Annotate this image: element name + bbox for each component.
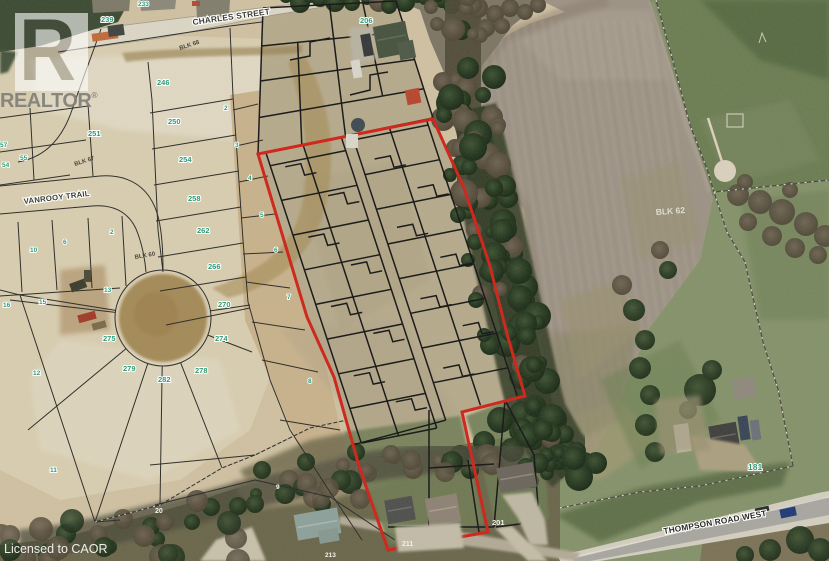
svg-text:266: 266 (208, 262, 221, 271)
svg-text:10: 10 (30, 247, 38, 254)
svg-text:2: 2 (110, 229, 114, 236)
svg-text:15: 15 (39, 299, 47, 306)
svg-text:13: 13 (104, 287, 112, 294)
svg-text:262: 262 (197, 226, 210, 235)
svg-text:2: 2 (224, 105, 228, 112)
svg-text:3: 3 (235, 142, 239, 149)
svg-text:REALTOR®: REALTOR® (0, 90, 98, 112)
svg-text:BLK 62: BLK 62 (655, 205, 685, 217)
svg-text:16: 16 (3, 302, 11, 309)
svg-text:8: 8 (308, 378, 312, 385)
svg-text:270: 270 (218, 300, 231, 309)
svg-text:7: 7 (287, 294, 291, 301)
svg-text:251: 251 (88, 129, 101, 138)
svg-text:250: 250 (168, 117, 181, 126)
svg-text:239: 239 (101, 15, 114, 24)
svg-text:274: 274 (215, 334, 228, 343)
svg-text:57: 57 (0, 142, 8, 149)
svg-text:275: 275 (103, 334, 116, 343)
svg-text:258: 258 (188, 194, 201, 203)
svg-text:5: 5 (260, 212, 264, 219)
svg-text:282: 282 (158, 375, 171, 384)
svg-text:254: 254 (179, 155, 192, 164)
svg-text:278: 278 (195, 366, 208, 375)
svg-text:246: 246 (157, 78, 170, 87)
svg-text:9: 9 (276, 484, 280, 491)
svg-text:4: 4 (248, 175, 252, 182)
svg-text:6: 6 (274, 247, 278, 254)
svg-text:181: 181 (748, 462, 762, 472)
svg-text:206: 206 (360, 16, 373, 25)
svg-text:11: 11 (50, 467, 57, 474)
svg-text:201: 201 (492, 518, 505, 527)
svg-text:12: 12 (33, 370, 41, 377)
svg-text:Licensed to CAOR: Licensed to CAOR (4, 542, 108, 556)
svg-text:6: 6 (63, 239, 67, 246)
svg-text:20: 20 (155, 508, 163, 515)
svg-text:279: 279 (123, 364, 136, 373)
svg-text:211: 211 (402, 541, 413, 548)
svg-text:213: 213 (325, 552, 336, 559)
svg-text:233: 233 (138, 1, 149, 8)
svg-text:54: 54 (2, 162, 10, 169)
svg-text:55: 55 (20, 155, 28, 162)
svg-text:R: R (19, 0, 76, 99)
